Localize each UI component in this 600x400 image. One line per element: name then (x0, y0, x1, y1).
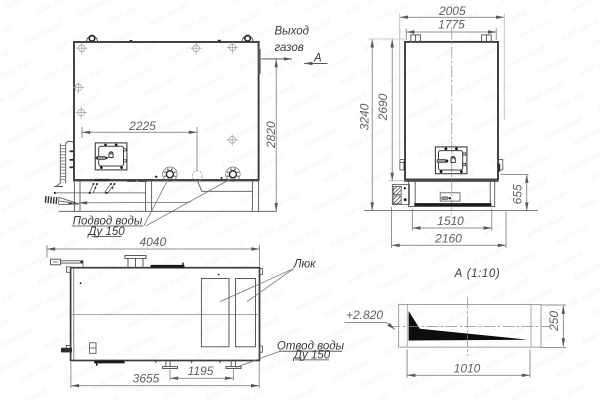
svg-text:3240: 3240 (358, 103, 372, 130)
svg-text:1775: 1775 (438, 18, 465, 32)
svg-text:2225: 2225 (128, 119, 156, 133)
svg-text:1195: 1195 (188, 364, 214, 378)
svg-text:3655: 3655 (133, 372, 160, 386)
svg-text:1510: 1510 (437, 214, 464, 228)
svg-text:1010: 1010 (454, 361, 481, 375)
svg-text:2820: 2820 (264, 121, 278, 149)
svg-text:2160: 2160 (434, 231, 462, 245)
svg-text:2005: 2005 (438, 4, 466, 18)
svg-text:250: 250 (547, 311, 561, 332)
svg-text:газов: газов (275, 42, 304, 54)
svg-text:Выход: Выход (275, 26, 310, 38)
svg-text:+2.820: +2.820 (346, 308, 383, 322)
svg-text:2690: 2690 (376, 93, 390, 121)
svg-text:А: А (313, 53, 322, 65)
svg-text:655: 655 (510, 184, 524, 204)
svg-text:А (1:10): А (1:10) (454, 268, 501, 280)
svg-text:4040: 4040 (139, 235, 166, 249)
svg-text:Люк: Люк (293, 259, 317, 271)
